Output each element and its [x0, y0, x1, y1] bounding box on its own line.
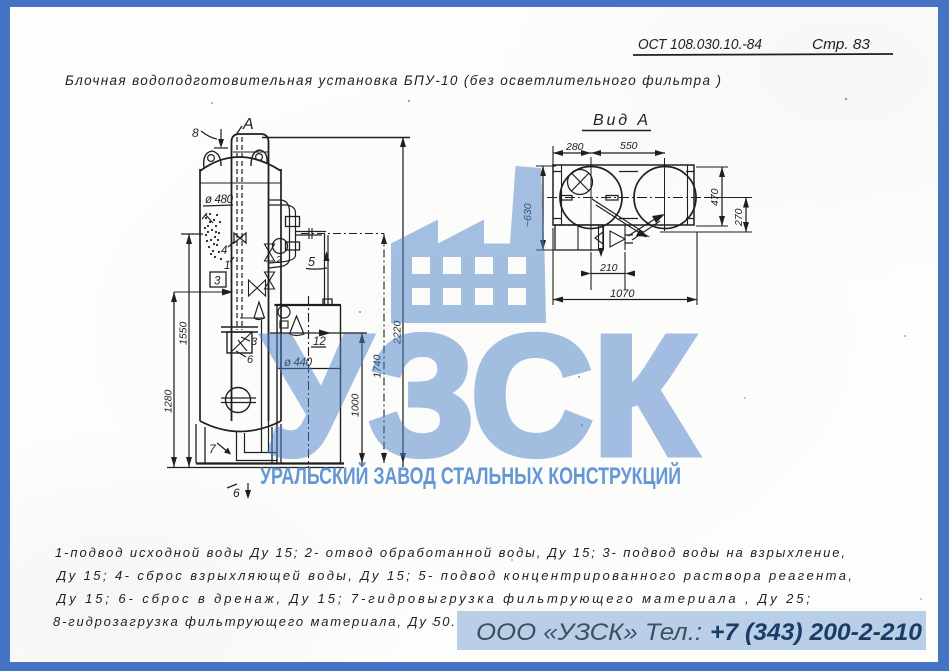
svg-text:550: 550	[620, 140, 638, 152]
svg-text:Ду 15; 4- сброс взрыхля: Ду 15; 4- сброс взрыхляющей воды, Ду 15;…	[55, 568, 852, 583]
svg-text:Блочная водоподготовительная: Блочная водоподготовительная установка Б…	[65, 73, 721, 88]
svg-text:6: 6	[233, 486, 240, 500]
svg-text:280: 280	[565, 141, 584, 153]
svg-text:1280: 1280	[163, 389, 175, 413]
svg-text:Вид А: Вид А	[593, 112, 648, 129]
svg-text:Стр. 83: Стр. 83	[812, 36, 871, 53]
svg-text:4: 4	[221, 245, 227, 257]
svg-text:8-гидрозагрузка фильтрующего: 8-гидрозагрузка фильтрующего материала, …	[53, 614, 455, 629]
svg-text:3: 3	[251, 336, 258, 348]
svg-text:5: 5	[308, 255, 315, 269]
svg-text:270: 270	[733, 208, 745, 227]
svg-text:210: 210	[599, 262, 618, 274]
svg-text:А: А	[242, 116, 254, 133]
svg-text:1550: 1550	[178, 321, 190, 345]
svg-text:6: 6	[247, 354, 254, 366]
svg-text:1-подвод исходной воды Ду 1: 1-подвод исходной воды Ду 15; 2- отвод о…	[55, 545, 845, 560]
svg-text:1070: 1070	[610, 288, 635, 300]
svg-text:Ду 15; 6- сброс в дрена: Ду 15; 6- сброс в дренаж, Ду 15; 7-гидро…	[55, 591, 810, 606]
svg-text:3: 3	[214, 276, 221, 288]
svg-text:ø 480: ø 480	[205, 194, 234, 206]
svg-text:ООО «УЗСК» Тел.: +7 (343) 200-: ООО «УЗСК» Тел.: +7 (343) 200-2-210	[476, 619, 923, 646]
svg-text:2: 2	[275, 255, 282, 266]
svg-text:УРАЛЬСКИЙ ЗАВОД СТАЛЬНЫХ КОНСТ: УРАЛЬСКИЙ ЗАВОД СТАЛЬНЫХ КОНСТРУКЦИЙ	[260, 462, 681, 490]
svg-text:1: 1	[224, 260, 230, 272]
svg-text:8: 8	[192, 126, 199, 140]
svg-text:7: 7	[209, 442, 217, 456]
svg-text:ОСТ 108.030.10.-84: ОСТ 108.030.10.-84	[638, 36, 762, 53]
